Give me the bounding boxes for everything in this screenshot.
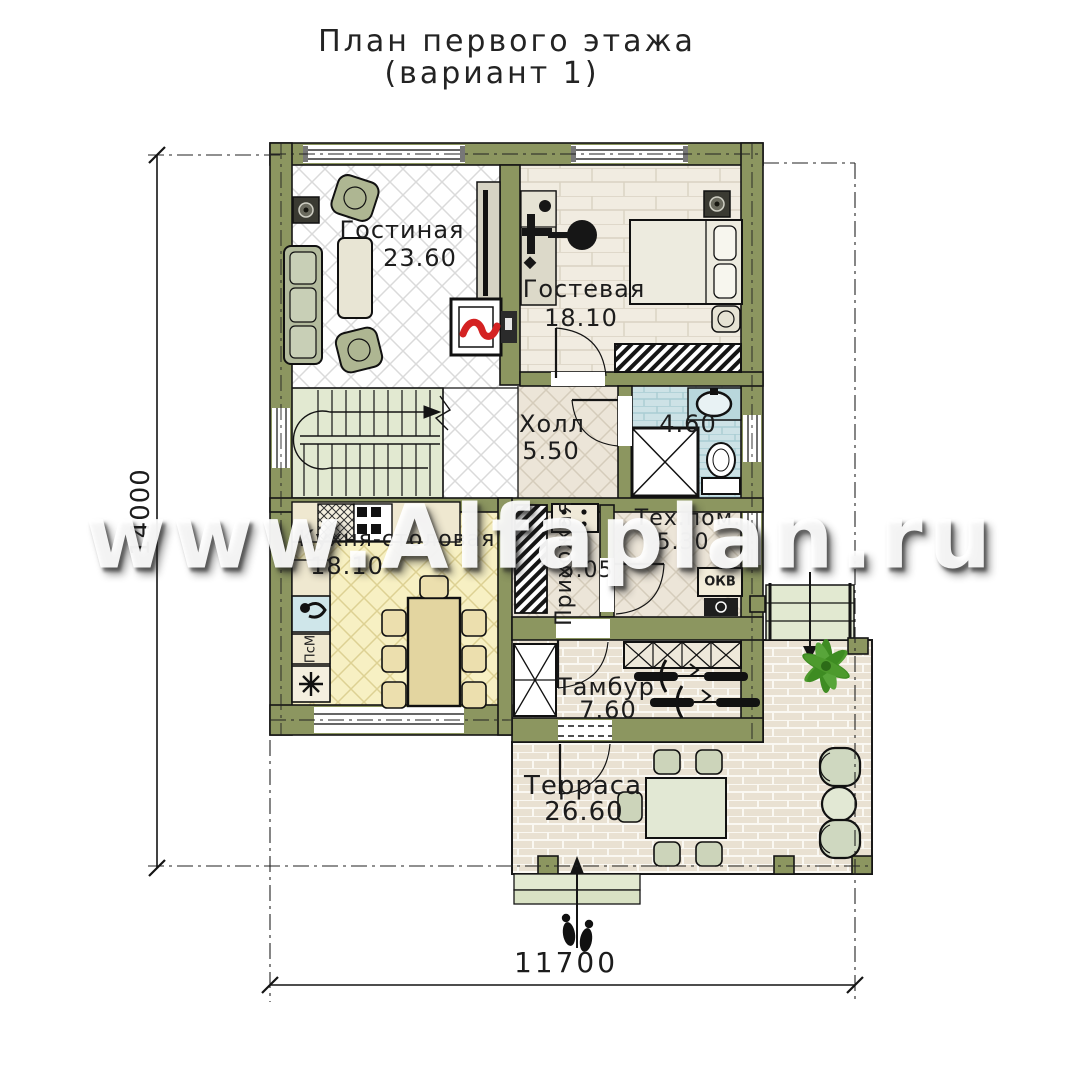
plan-title-line2: (вариант 1): [384, 59, 599, 89]
watermark: www.Alfaplan.ru: [85, 486, 997, 589]
plan-title-line1: План первого этажа: [318, 27, 696, 57]
room-label-terrace-area: 26.60: [544, 799, 623, 825]
room-label-vestibule-area: 7.60: [579, 698, 636, 722]
terrace-table: [646, 778, 726, 838]
dimension-horizontal-label: 11700: [514, 949, 618, 977]
coffee-table: [338, 238, 372, 318]
built-in-wardrobe: [615, 344, 741, 372]
tech-appliance: [704, 598, 738, 616]
nightstand: [712, 306, 740, 332]
dimension-line-horizontal: [262, 977, 863, 993]
room-label-hall-name: Холл: [519, 412, 585, 436]
cooktop: [292, 666, 330, 702]
room-label-terrace-name: Терраса: [524, 773, 642, 799]
speaker-icon: [704, 191, 730, 217]
floor-plan-canvas: План первого этажа (вариант 1) Гостиная …: [0, 0, 1080, 1080]
terrace-lounge-set: [820, 748, 860, 858]
washer-label: ПсМ: [305, 635, 318, 663]
kitchen-sink: [292, 596, 330, 632]
room-label-guest-area: 18.10: [544, 306, 618, 330]
room-label-living-area: 23.60: [383, 246, 457, 270]
sofa: [284, 246, 322, 364]
tv-panel: [477, 182, 500, 304]
room-label-hall-area: 5.50: [522, 439, 579, 463]
speaker-icon: [293, 197, 319, 223]
window-living-top: [303, 145, 465, 163]
vestibule-closet: [514, 644, 556, 716]
room-label-living-name: Гостиная: [340, 218, 465, 242]
storage-row: [624, 642, 741, 668]
bed: [630, 220, 742, 304]
room-label-bathroom-area: 4.60: [659, 412, 716, 436]
room-label-guest-name: Гостевая: [523, 277, 646, 301]
